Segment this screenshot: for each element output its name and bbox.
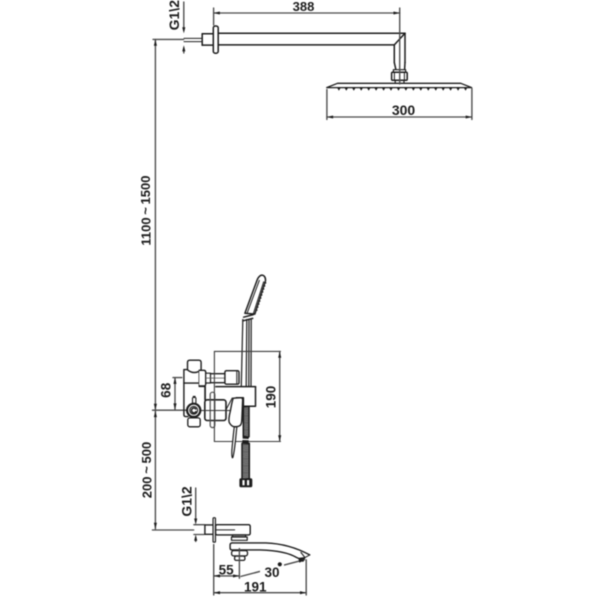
svg-text:68: 68 bbox=[158, 382, 173, 398]
svg-text:30: 30 bbox=[264, 565, 279, 580]
svg-text:200~500: 200~500 bbox=[139, 442, 154, 498]
svg-text:G1\2: G1\2 bbox=[179, 486, 195, 517]
svg-text:191: 191 bbox=[244, 580, 267, 595]
svg-text:55: 55 bbox=[219, 562, 235, 577]
svg-text:1100~1500: 1100~1500 bbox=[138, 176, 153, 246]
svg-text:G1\2: G1\2 bbox=[166, 0, 182, 30]
svg-text:190: 190 bbox=[263, 386, 278, 409]
svg-text:300: 300 bbox=[392, 102, 416, 118]
svg-text:388: 388 bbox=[293, 0, 315, 14]
